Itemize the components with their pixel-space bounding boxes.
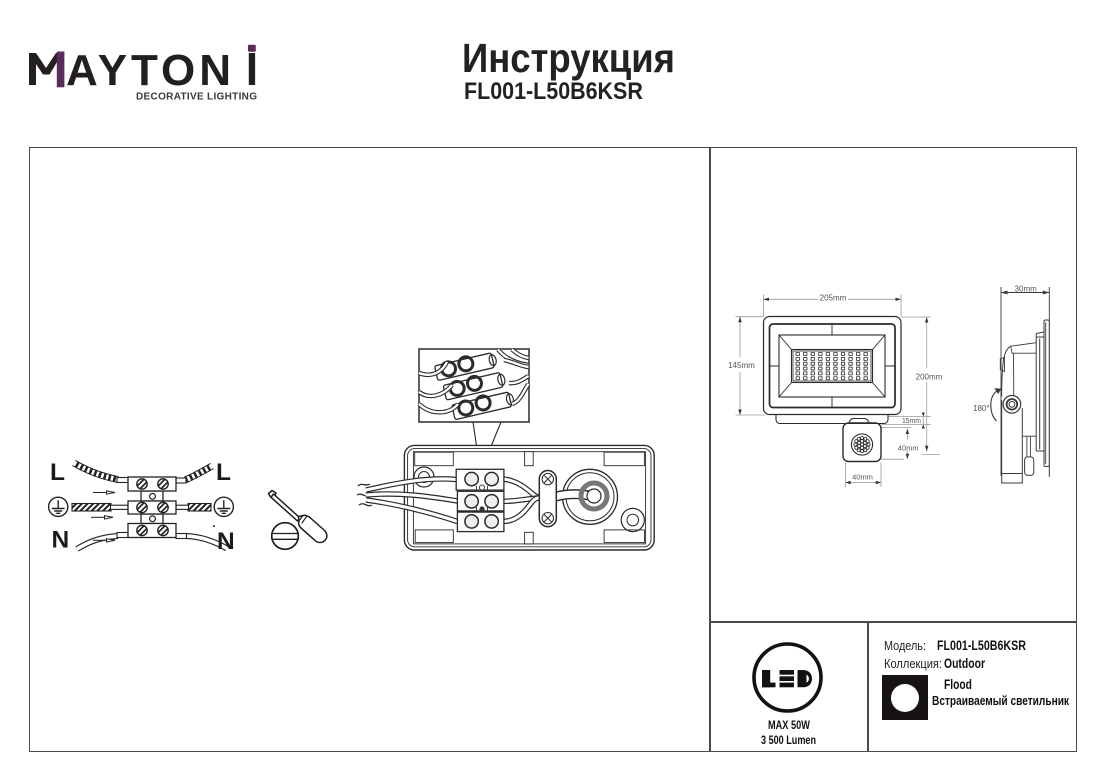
svg-text:L: L	[216, 459, 231, 486]
svg-text:L: L	[50, 459, 65, 486]
svg-text:AYTON: AYTON	[66, 46, 231, 95]
svg-text:205mm: 205mm	[820, 293, 847, 302]
svg-text:N: N	[217, 528, 235, 555]
svg-text:30mm: 30mm	[1015, 285, 1038, 294]
svg-text:40mm: 40mm	[898, 443, 919, 452]
svg-text:15mm: 15mm	[902, 416, 921, 425]
svg-text:40mm: 40mm	[852, 473, 873, 482]
svg-text:200mm: 200mm	[916, 373, 943, 382]
svg-text:145mm: 145mm	[728, 361, 755, 370]
svg-text:N: N	[52, 526, 70, 553]
svg-text:180°: 180°	[973, 404, 990, 413]
svg-text:DECORATIVE LIGHTING: DECORATIVE LIGHTING	[136, 92, 257, 103]
